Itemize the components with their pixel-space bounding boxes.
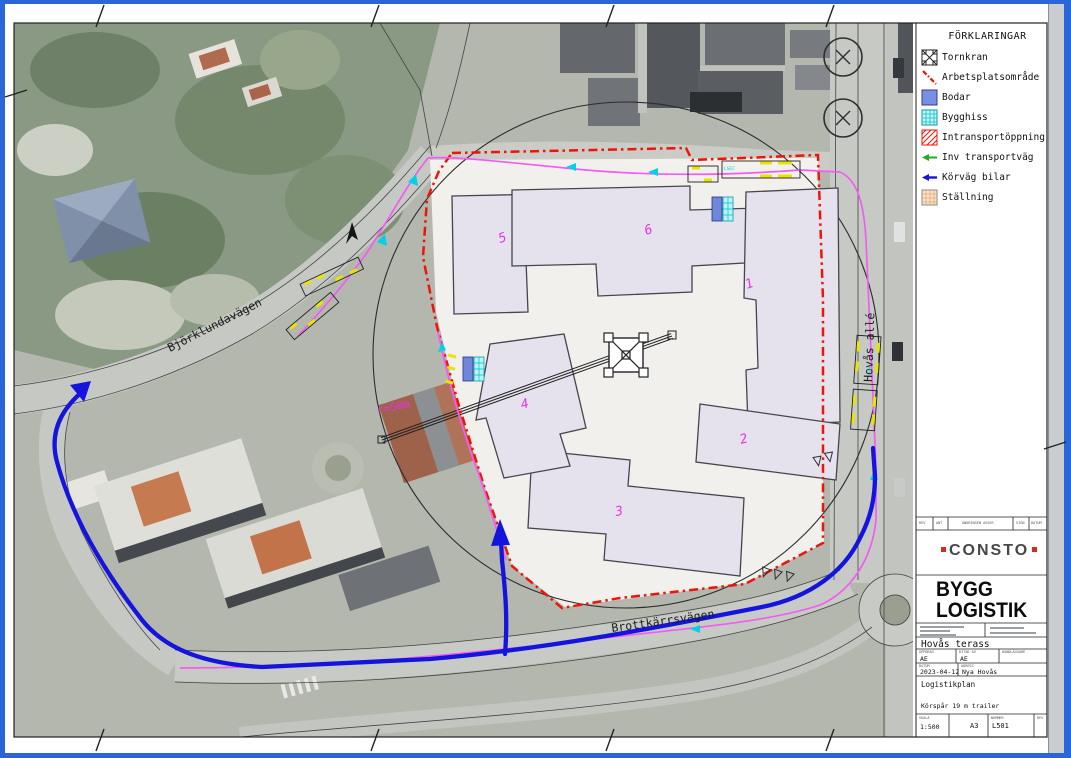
green-arrow-icon (921, 149, 938, 166)
trailer-code-top: LSEC (724, 166, 735, 172)
bygghiss-marker-1 (723, 197, 733, 221)
legend-item-stallning: Ställning (921, 188, 993, 206)
scale-value: 1:500 (920, 723, 940, 731)
bygghiss-icon (921, 109, 938, 126)
project-name: Hovås terass (921, 639, 990, 650)
site-plan-map: Björklundavägen Brottkärrsvägen Hovås al… (14, 23, 913, 737)
scale-label: SKALA (919, 716, 930, 720)
revision-col-ant: ANT (936, 521, 942, 525)
work-area-line-icon (921, 69, 938, 86)
field-value-ritad-av: AE (960, 655, 968, 663)
legend-item-bygghiss: Bygghiss (921, 108, 988, 126)
scaffolding-icon (921, 189, 938, 206)
field-value-uppdrag: AE (920, 655, 928, 663)
legend-item-intransportoppning: Intransportöppning (921, 128, 1045, 146)
trailer-code-east: LSEC (867, 365, 873, 376)
brand-line-logistik: LOGISTIK (936, 599, 1027, 623)
bodar-icon (921, 89, 938, 106)
vehicle-note: Körspår 19 m trailer (921, 702, 999, 710)
bodar-marker-2 (463, 357, 473, 381)
field-label-uppdrag: UPPDRAG (919, 650, 934, 654)
bygghiss-marker-2 (474, 357, 484, 381)
tower-crane-icon (921, 49, 938, 66)
legend-item-arbetsplatsomrade: Arbetsplatsområde (921, 68, 1039, 86)
legend-item-tornkran: Tornkran (921, 48, 988, 66)
consto-logo-dot-right (1032, 547, 1037, 552)
number-label: NUMMER (991, 716, 1004, 720)
area-value: Nya Hovås (962, 668, 997, 676)
consto-logo-dot-left (941, 547, 946, 552)
legend-title: FÖRKLARINGAR (928, 31, 1047, 42)
number-value: L501 (992, 722, 1009, 730)
revision-col-datum: DATUM (1031, 521, 1042, 525)
intransport-icon (921, 129, 938, 146)
content-title: Logistikplan (921, 680, 975, 689)
format-value: A3 (970, 722, 978, 730)
legend-item-korvag-bilar: Körväg bilar (921, 168, 1011, 186)
drawing-sheet-window: Björklundavägen Brottkärrsvägen Hovås al… (0, 0, 1071, 758)
legend-item-inv-transportvag: Inv transportväg (921, 148, 1034, 166)
rev-label: REV (1037, 716, 1043, 720)
building-1 (744, 188, 840, 426)
revision-col-avser: ÄNDRINGEN AVSER (962, 521, 994, 525)
blue-arrow-icon (921, 169, 938, 186)
legend-item-bodar: Bodar (921, 88, 971, 106)
consto-logo: CONSTO (938, 542, 1038, 560)
revision-col-sign: SIGN (1016, 521, 1024, 525)
field-label-handlaggare: HANDLÄGGARE (1002, 650, 1025, 654)
sheet-edge-strip (1048, 4, 1064, 753)
date-value: 2023-04-12 (920, 668, 959, 676)
bodar-marker-1 (712, 197, 722, 221)
revision-col-rev: REV (919, 521, 925, 525)
field-label-ritad-av: RITAD AV (959, 650, 976, 654)
